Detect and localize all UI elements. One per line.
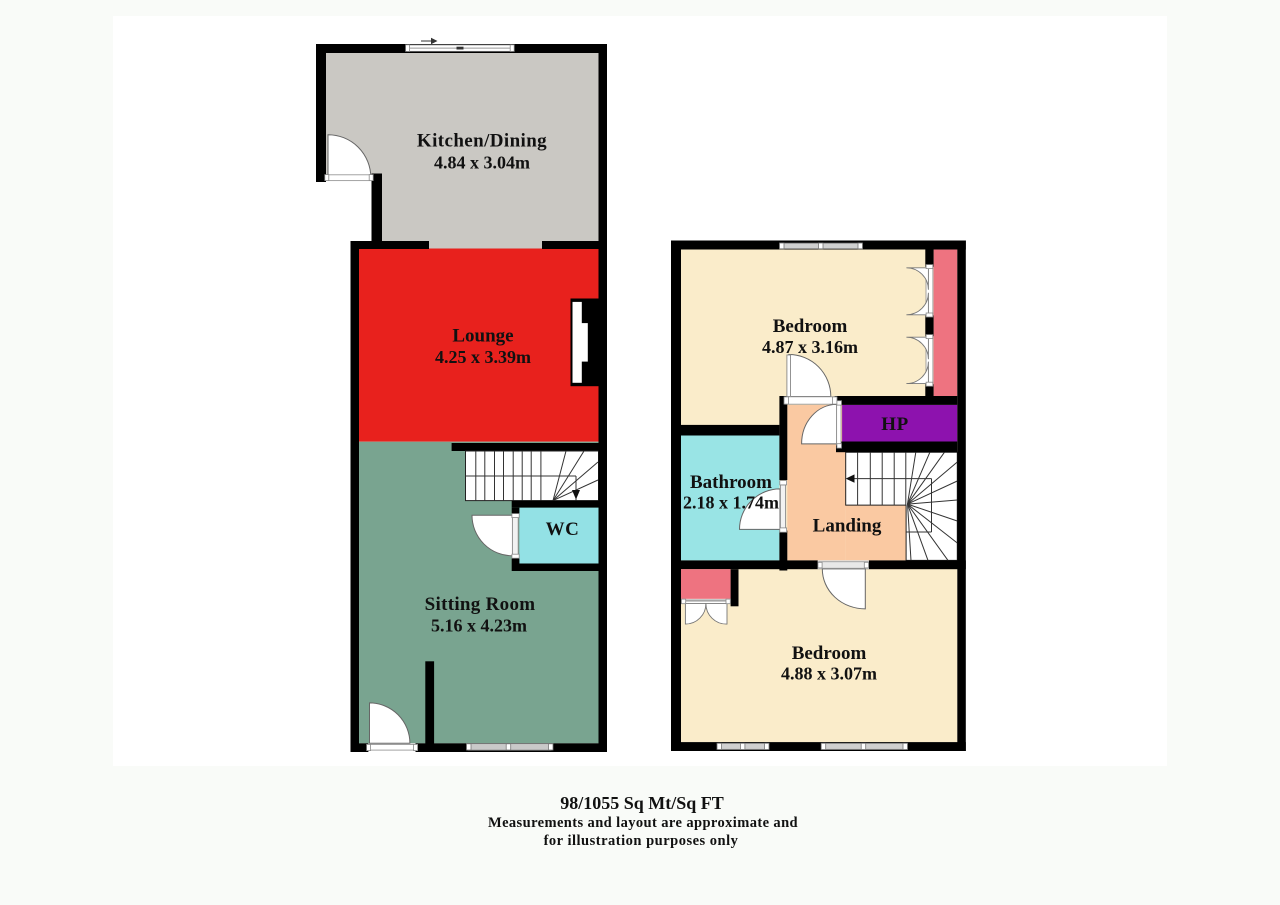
svg-text:Bedroom: Bedroom (773, 316, 848, 337)
svg-text:Kitchen/Dining: Kitchen/Dining (417, 131, 547, 152)
svg-text:Bathroom: Bathroom (690, 472, 772, 493)
svg-text:4.88 x 3.07m: 4.88 x 3.07m (781, 664, 877, 684)
svg-text:Bedroom: Bedroom (792, 643, 867, 664)
svg-text:5.16 x 4.23m: 5.16 x 4.23m (431, 616, 527, 636)
svg-text:2.18 x 1.74m: 2.18 x 1.74m (683, 493, 779, 513)
svg-text:WC: WC (546, 519, 580, 540)
svg-text:4.25 x 3.39m: 4.25 x 3.39m (435, 347, 531, 367)
svg-text:Sitting Room: Sitting Room (425, 594, 536, 615)
svg-text:98/1055 Sq Mt/Sq FT: 98/1055 Sq Mt/Sq FT (560, 793, 724, 813)
svg-text:4.84 x 3.04m: 4.84 x 3.04m (434, 153, 530, 173)
svg-text:4.87 x 3.16m: 4.87 x 3.16m (762, 337, 858, 357)
svg-text:Landing: Landing (813, 516, 882, 537)
svg-text:Measurements and layout are ap: Measurements and layout are approximate … (488, 815, 798, 831)
svg-text:for illustration purposes only: for illustration purposes only (544, 833, 739, 849)
svg-text:HP: HP (881, 414, 908, 435)
svg-text:Lounge: Lounge (452, 326, 513, 347)
